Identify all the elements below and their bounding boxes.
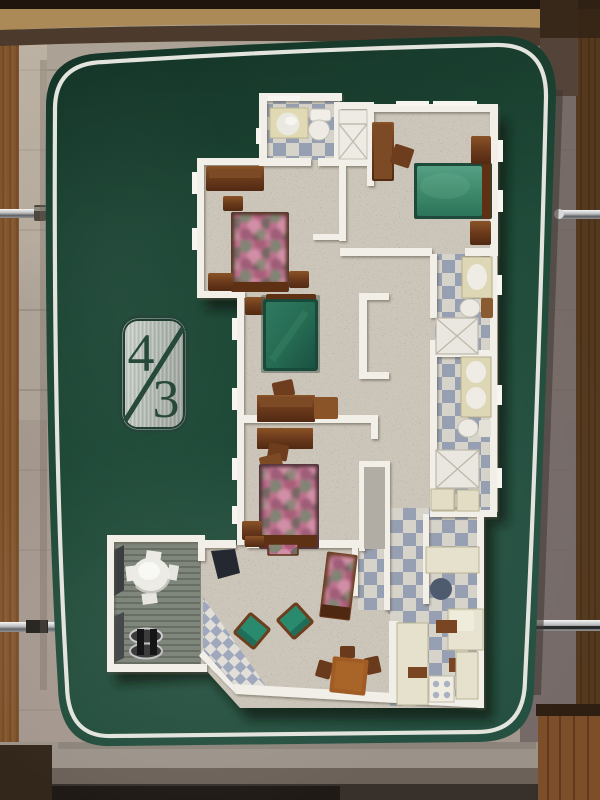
svg-text:3: 3 xyxy=(153,369,180,429)
svg-text:4: 4 xyxy=(128,323,155,383)
